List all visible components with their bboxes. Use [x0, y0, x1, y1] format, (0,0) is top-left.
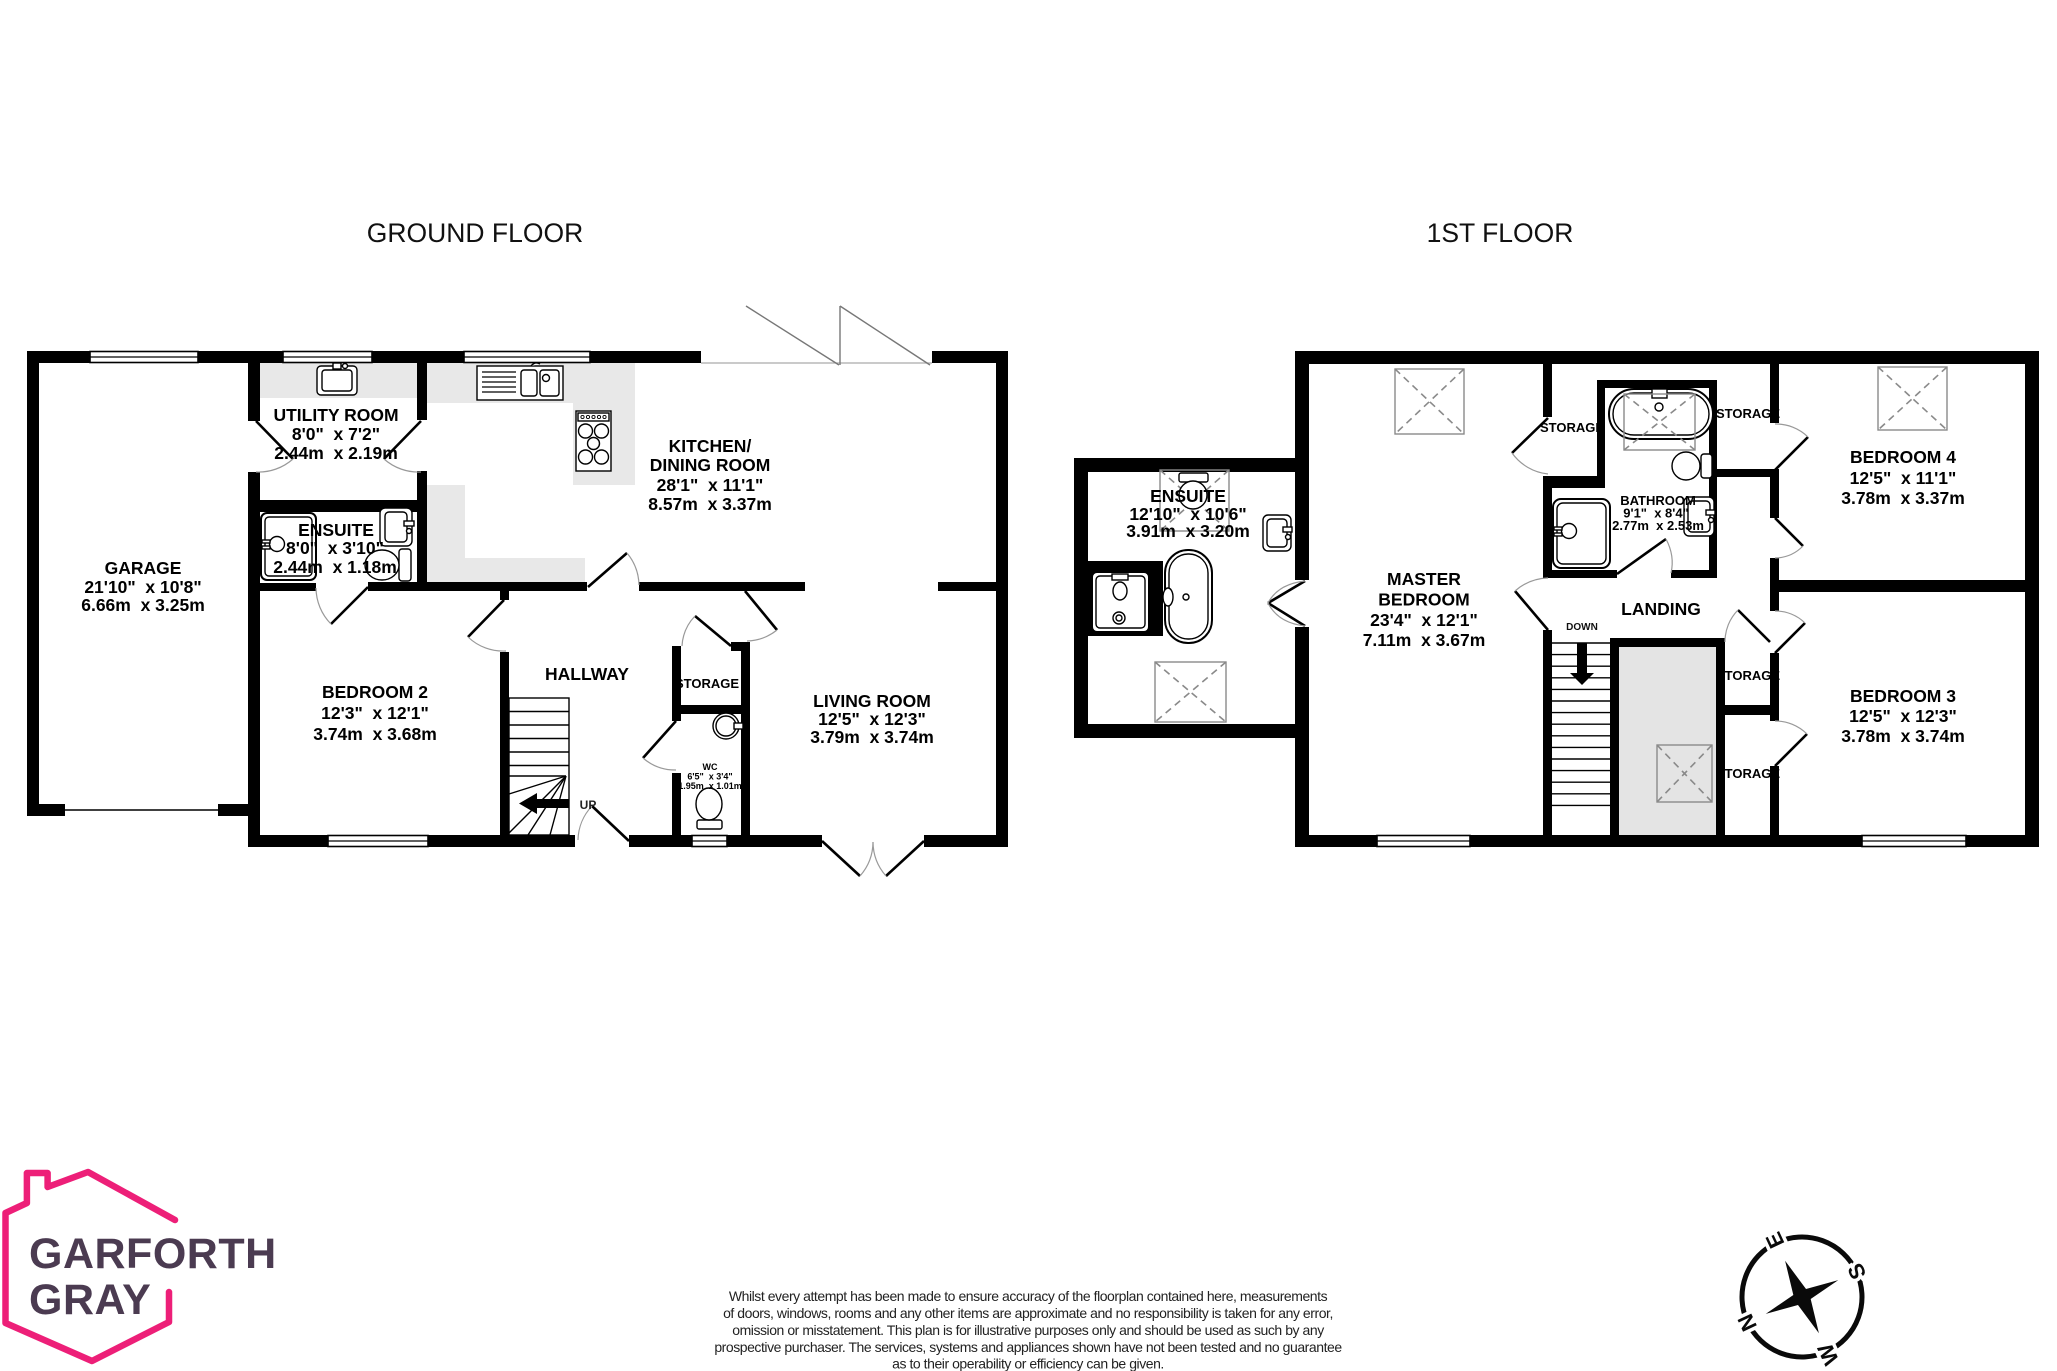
svg-text:GRAY: GRAY	[29, 1276, 151, 1324]
svg-text:3.91m x 3.20m: 3.91m x 3.20m	[1126, 521, 1250, 541]
svg-text:2.44m x 1.18m: 2.44m x 1.18m	[273, 557, 397, 577]
svg-text:12'5" x 12'3": 12'5" x 12'3"	[818, 709, 926, 729]
svg-text:23'4" x 12'1": 23'4" x 12'1"	[1370, 610, 1478, 630]
svg-text:3.79m x 3.74m: 3.79m x 3.74m	[810, 727, 934, 747]
svg-text:GARAGE: GARAGE	[105, 558, 182, 578]
svg-text:STORAGE: STORAGE	[675, 676, 739, 691]
svg-text:3.78m x 3.37m: 3.78m x 3.37m	[1841, 488, 1965, 508]
svg-text:STORAGE: STORAGE	[1540, 420, 1604, 435]
svg-text:12'5" x 12'3": 12'5" x 12'3"	[1849, 706, 1957, 726]
svg-text:8'0" x 3'10": 8'0" x 3'10"	[286, 538, 384, 558]
svg-text:DOWN: DOWN	[1566, 622, 1598, 633]
svg-text:6'5" x 3'4": 6'5" x 3'4"	[687, 772, 732, 782]
svg-text:LIVING ROOM: LIVING ROOM	[813, 691, 931, 711]
svg-text:28'1" x 11'1": 28'1" x 11'1"	[657, 475, 764, 495]
svg-text:UTILITY ROOM: UTILITY ROOM	[273, 405, 398, 425]
svg-text:BEDROOM 3: BEDROOM 3	[1850, 686, 1956, 706]
svg-text:WC: WC	[703, 762, 718, 772]
svg-text:BEDROOM 4: BEDROOM 4	[1850, 447, 1956, 467]
svg-text:prospective purchaser. The ser: prospective purchaser. The services, sys…	[714, 1339, 1342, 1355]
svg-text:12'3" x 12'1": 12'3" x 12'1"	[321, 703, 429, 723]
svg-text:UP: UP	[580, 798, 597, 812]
svg-text:of doors, windows, rooms and a: of doors, windows, rooms and any other i…	[723, 1305, 1333, 1321]
svg-text:2.77m x 2.53m: 2.77m x 2.53m	[1612, 518, 1704, 533]
svg-text:3.74m x 3.68m: 3.74m x 3.68m	[313, 724, 437, 744]
svg-text:7.11m x 3.67m: 7.11m x 3.67m	[1363, 630, 1486, 650]
svg-text:BEDROOM: BEDROOM	[1378, 590, 1469, 610]
svg-text:21'10" x 10'8": 21'10" x 10'8"	[84, 577, 201, 597]
svg-text:omission or misstatement. This: omission or misstatement. This plan is f…	[732, 1322, 1324, 1338]
svg-text:1ST FLOOR: 1ST FLOOR	[1427, 218, 1574, 248]
svg-text:ENSUITE: ENSUITE	[1150, 486, 1226, 506]
svg-text:as to their operability or eff: as to their operability or efficiency ca…	[892, 1356, 1164, 1371]
svg-text:LANDING: LANDING	[1621, 599, 1701, 619]
svg-text:BEDROOM 2: BEDROOM 2	[322, 682, 428, 702]
svg-text:GROUND FLOOR: GROUND FLOOR	[367, 218, 583, 248]
svg-text:8'0" x 7'2": 8'0" x 7'2"	[292, 424, 380, 444]
svg-text:MASTER: MASTER	[1387, 569, 1461, 589]
svg-text:6.66m x 3.25m: 6.66m x 3.25m	[81, 595, 205, 615]
svg-text:8.57m x 3.37m: 8.57m x 3.37m	[648, 494, 772, 514]
svg-text:KITCHEN/: KITCHEN/	[669, 436, 752, 456]
svg-text:1.95m x 1.01m: 1.95m x 1.01m	[678, 781, 742, 791]
svg-text:HALLWAY: HALLWAY	[545, 664, 629, 684]
svg-text:3.78m x 3.74m: 3.78m x 3.74m	[1841, 726, 1965, 746]
svg-text:Whilst every attempt has been: Whilst every attempt has been made to en…	[729, 1288, 1328, 1304]
svg-text:GARFORTH: GARFORTH	[29, 1230, 277, 1278]
svg-text:2.44m x 2.19m: 2.44m x 2.19m	[274, 443, 398, 463]
svg-text:12'5" x 11'1": 12'5" x 11'1"	[1850, 468, 1957, 488]
svg-text:DINING ROOM: DINING ROOM	[650, 455, 771, 475]
svg-text:ENSUITE: ENSUITE	[298, 520, 374, 540]
